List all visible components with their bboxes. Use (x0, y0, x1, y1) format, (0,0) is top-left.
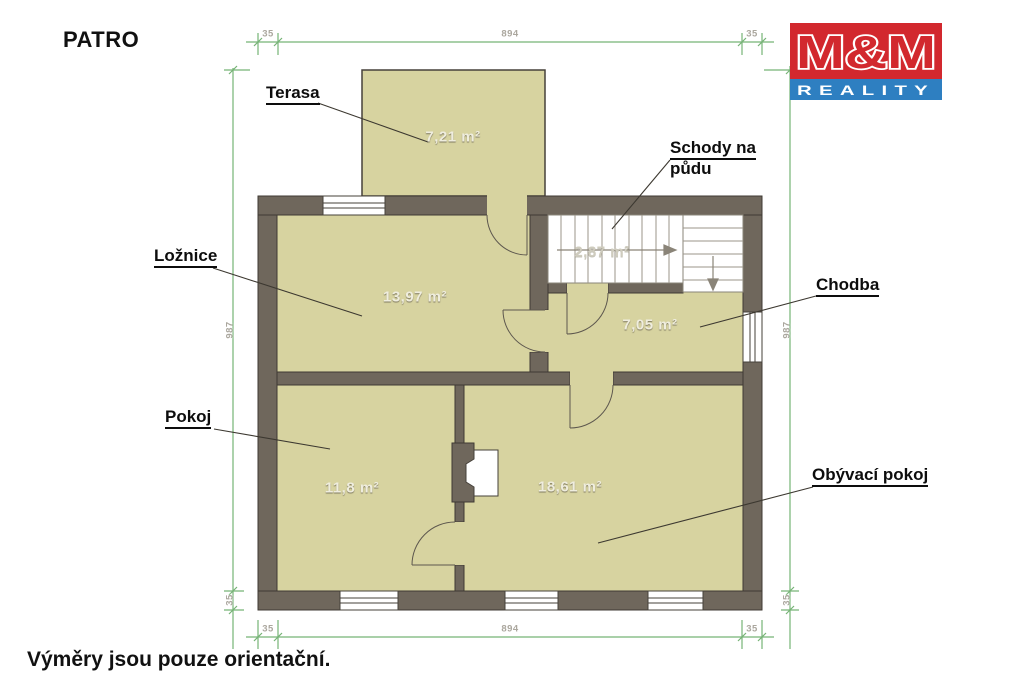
area-loznice: 13,97 m² (383, 289, 447, 306)
area-chodba: 7,05 m² (622, 317, 677, 334)
window-bedroom-top (323, 196, 385, 215)
area-schody: 2,87 m² (574, 244, 629, 261)
room-label-schody: Schody na půdu (670, 139, 756, 178)
logo-mm-text: M&M (796, 26, 936, 78)
page-title: PATRO (63, 27, 139, 53)
dim-bottom-width: 894 (501, 624, 518, 635)
dim-bottom-right-wall: 35 (746, 624, 758, 635)
dim-top-left-wall: 35 (262, 29, 274, 40)
dim-left-height: 987 (225, 321, 236, 338)
room-label-loznice: Ložnice (154, 247, 217, 268)
dim-left-bottom-wall: 35 (225, 594, 236, 606)
dim-bottom-left-wall: 35 (262, 624, 274, 635)
room-label-obyvaci: Obývací pokoj (812, 466, 928, 487)
dim-top-width: 894 (501, 29, 518, 40)
dim-right-bottom-wall: 35 (782, 594, 793, 606)
room-label-terasa: Terasa (266, 84, 320, 105)
dim-top-right-wall: 35 (746, 29, 758, 40)
footnote: Výměry jsou pouze orientační. (27, 648, 330, 672)
window-living-bottom-1 (505, 591, 558, 610)
area-obyvaci: 18,61 m² (538, 479, 602, 496)
window-living-bottom-2 (648, 591, 703, 610)
area-pokoj: 11,8 m² (325, 480, 379, 497)
window-pokoj-bottom (340, 591, 398, 610)
dim-right-height: 987 (782, 321, 793, 338)
window-hall-right (743, 312, 762, 362)
floorplan-page: PATRO Terasa Ložnice Schody na půdu Chod… (0, 0, 1024, 683)
logo-reality-text: REALITY (797, 82, 935, 98)
area-terasa: 7,21 m² (425, 129, 480, 146)
room-label-pokoj: Pokoj (165, 408, 211, 429)
room-label-chodba: Chodba (816, 276, 879, 297)
